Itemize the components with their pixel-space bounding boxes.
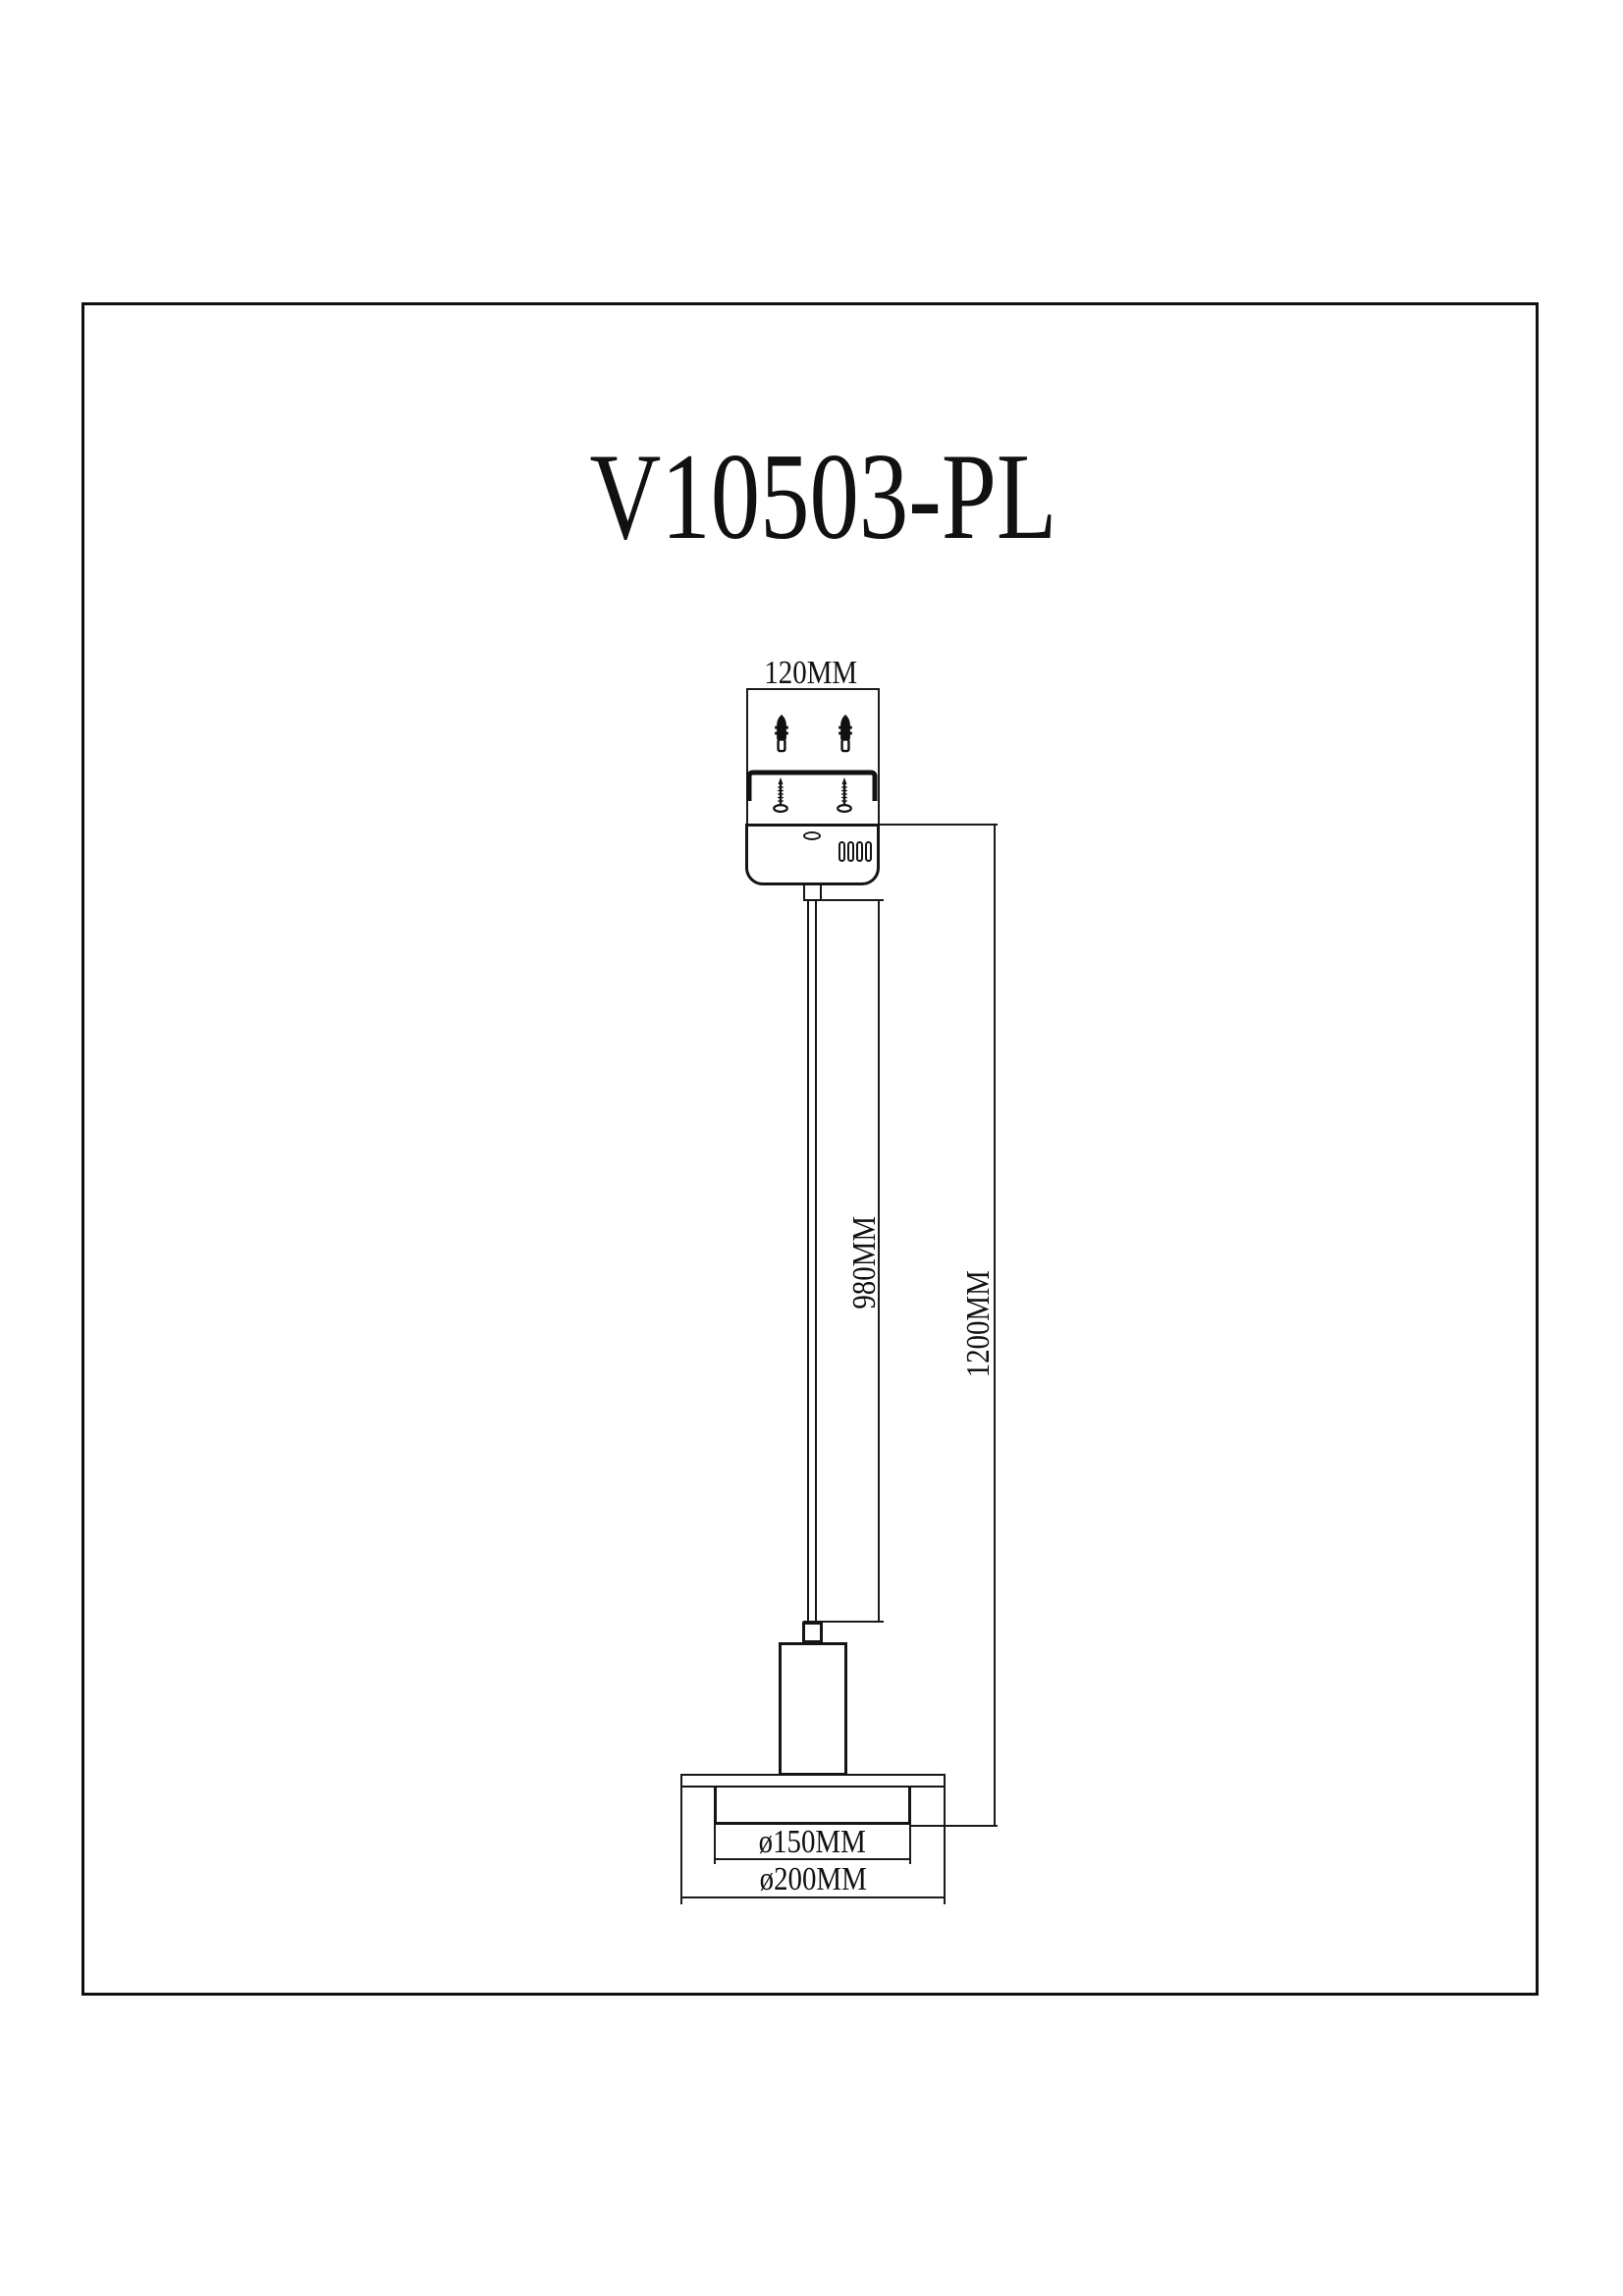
outer-diameter-dimension-line [680, 1896, 946, 1898]
vent-slot [847, 841, 854, 862]
lamp-socket [779, 1642, 847, 1776]
wall-anchor-icon [772, 714, 791, 754]
inner-diameter-dimension-line [714, 1858, 911, 1860]
canopy-width-dimension-line [746, 688, 880, 690]
shade-top-plate [680, 1774, 946, 1788]
model-title: V10503-PL [531, 436, 1022, 573]
cord-grip-bottom [802, 1622, 823, 1643]
canopy-width-extension-line-right [878, 688, 880, 824]
overall-drop-label: 1200MM [962, 1236, 996, 1413]
screw-icon [773, 777, 788, 815]
vent-slot [856, 841, 863, 862]
drawing-sheet: V10503-PL 120MM [0, 0, 1623, 2296]
overall-drop-extension-line-bottom [911, 1825, 998, 1827]
wall-anchor-icon [836, 714, 855, 754]
model-title-text: V10503-PL [590, 436, 1057, 560]
canopy-hole [803, 831, 821, 840]
vent-slot [839, 841, 845, 862]
mounting-bracket [743, 768, 881, 803]
suspension-cord [807, 900, 817, 1623]
vent-slot [865, 841, 872, 862]
glass-shade [714, 1788, 911, 1825]
inner-diameter-label: ø150MM [714, 1826, 910, 1859]
canopy-vent-slots [839, 841, 872, 862]
outer-diameter-label: ø200MM [680, 1863, 946, 1896]
cord-length-extension-line-top [821, 899, 884, 901]
canopy-width-label: 120MM [732, 657, 890, 690]
cord-grip-top [803, 883, 822, 901]
canopy-width-extension-line-left [746, 688, 748, 824]
screw-icon [837, 777, 852, 815]
cord-length-label: 980MM [848, 1184, 882, 1341]
overall-drop-extension-line-top [880, 824, 998, 826]
